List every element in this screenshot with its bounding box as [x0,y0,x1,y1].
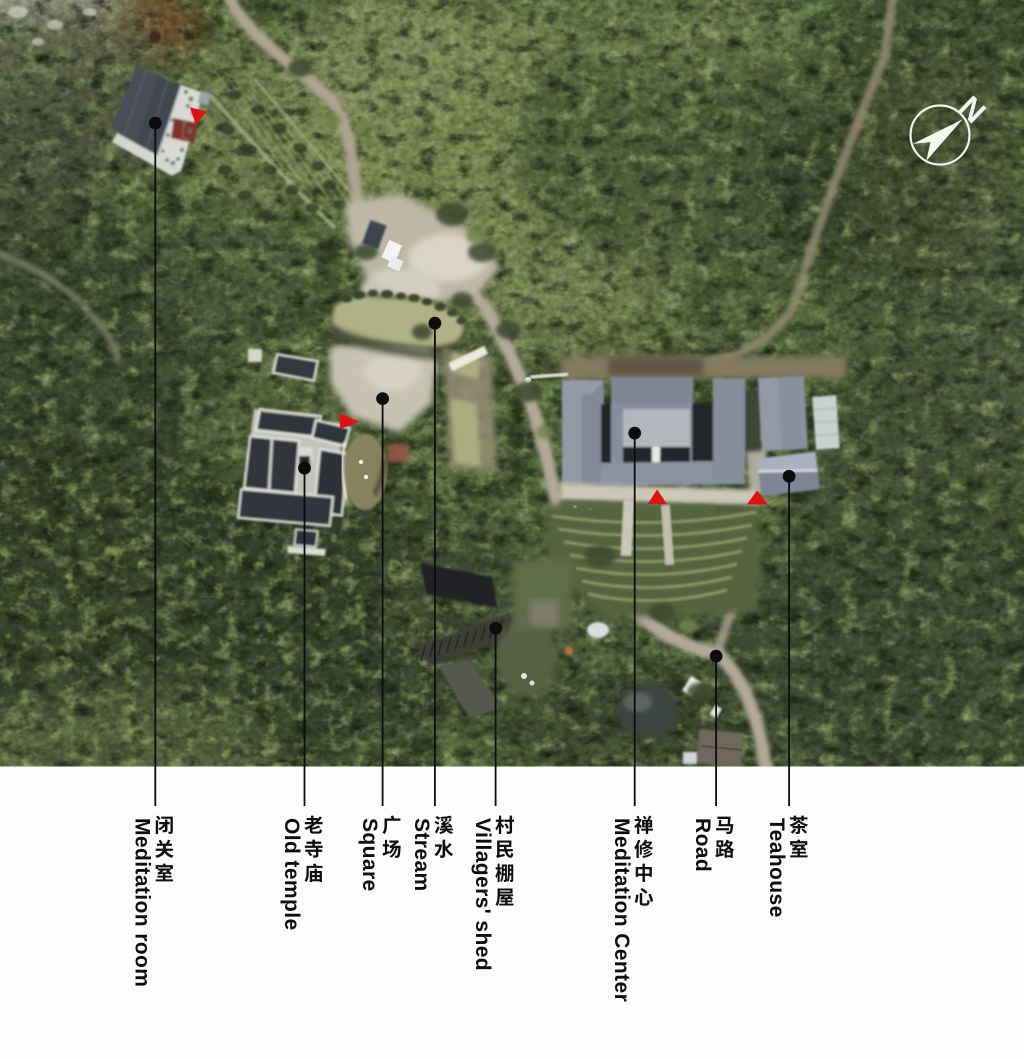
svg-text:Villagers' shed: Villagers' shed [471,818,494,971]
svg-text:Road: Road [691,818,714,872]
svg-text:Meditation room: Meditation room [131,818,154,987]
svg-text:Square: Square [358,818,381,892]
svg-text:Meditation Center: Meditation Center [610,818,633,1002]
svg-text:Teahouse: Teahouse [765,818,788,918]
svg-text:Old temple: Old temple [280,818,303,931]
svg-text:Stream: Stream [410,818,433,892]
